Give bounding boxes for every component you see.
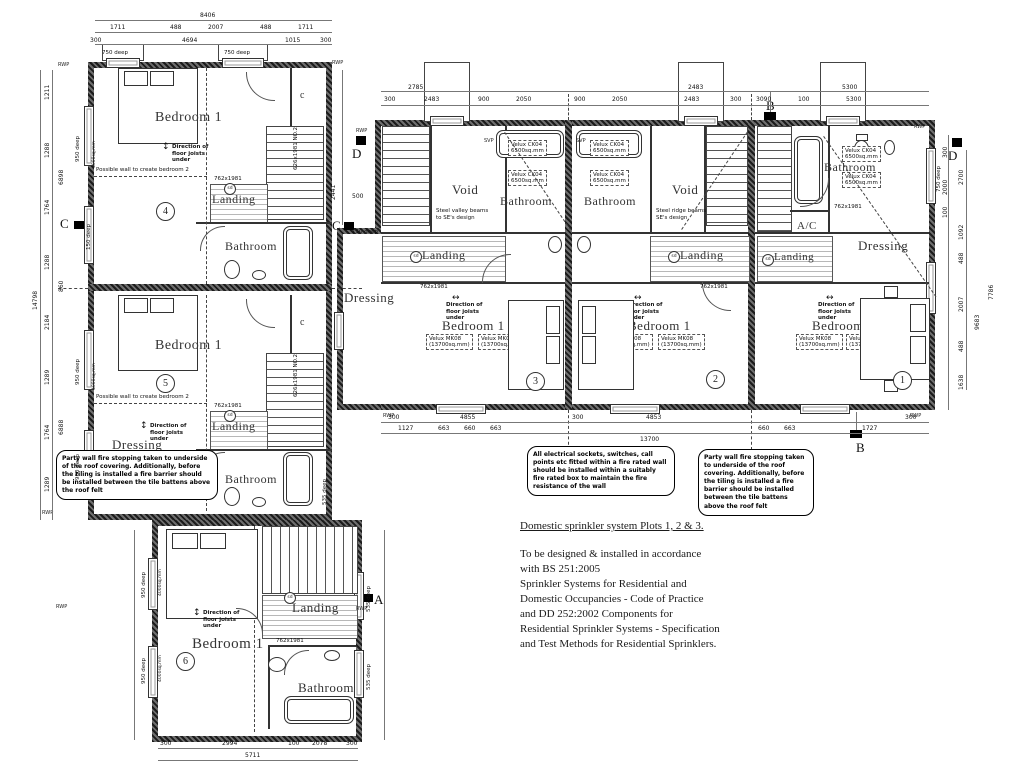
dimension-label: 6898 bbox=[58, 170, 65, 185]
dimension-label: 660 bbox=[758, 425, 769, 432]
dimension-label: 2000 bbox=[942, 180, 949, 195]
room-label-bathroom: Bathroom bbox=[500, 194, 552, 209]
section-marker-a: A bbox=[374, 592, 383, 608]
velux-rooflight-label: Velux CK046500sq.mm bbox=[590, 140, 629, 156]
dimension-line bbox=[381, 91, 929, 92]
deep-label: 950 deep bbox=[75, 454, 82, 480]
smoke-detector: sd bbox=[668, 251, 680, 263]
room-label-ac: A/C bbox=[797, 220, 817, 232]
velux-area: 6500sq.mm bbox=[593, 148, 626, 154]
dimension-line bbox=[95, 44, 332, 45]
dimension-line bbox=[966, 150, 967, 390]
sprinkler-line: and DD 252:2002 Components for bbox=[520, 608, 673, 620]
dimension-label: 488 bbox=[170, 24, 181, 31]
dimension-label: 1288 bbox=[44, 255, 51, 270]
dimension-label: 1211 bbox=[44, 85, 51, 100]
door-size: 762x1981 bbox=[420, 284, 448, 291]
possible-wall-line bbox=[94, 403, 207, 404]
dimension-label: 1711 bbox=[110, 24, 125, 31]
dimension-label: 2483 bbox=[424, 96, 439, 103]
svp-label: SVP bbox=[576, 138, 586, 144]
door-size: 762x1981 bbox=[214, 403, 242, 410]
dimension-line bbox=[381, 105, 929, 106]
deep-label: 950 deep bbox=[141, 658, 148, 684]
dimension-label: 300 bbox=[384, 96, 395, 103]
window bbox=[684, 116, 718, 126]
sink bbox=[252, 270, 266, 280]
sprinkler-line: and Test Methods for Residential Sprinkl… bbox=[520, 638, 716, 650]
dimension-label: 2050 bbox=[516, 96, 531, 103]
dimension-label: 300 bbox=[905, 414, 916, 421]
window bbox=[106, 58, 140, 68]
dimension-label: 660 bbox=[464, 425, 475, 432]
partition bbox=[650, 126, 652, 232]
bathtub bbox=[283, 452, 313, 506]
pillow bbox=[582, 306, 596, 334]
dimension-label: 100 bbox=[798, 96, 809, 103]
bathtub bbox=[283, 226, 313, 280]
smoke-detector: sd bbox=[410, 251, 422, 263]
velux-area: 6500sq.mm bbox=[593, 178, 626, 184]
pillow bbox=[150, 71, 174, 86]
centre-line bbox=[751, 410, 752, 450]
partition bbox=[268, 645, 356, 647]
partition bbox=[381, 232, 565, 234]
sink bbox=[884, 140, 895, 155]
section-line bbox=[856, 412, 857, 430]
room-label-bedroom: Bedroom 1 bbox=[192, 636, 264, 653]
pillow bbox=[124, 298, 148, 313]
dimension-label: 6888 bbox=[58, 420, 65, 435]
plot-number: 6 bbox=[176, 652, 195, 671]
pillow bbox=[546, 336, 560, 364]
dimension-label: 663 bbox=[490, 425, 501, 432]
possible-wall-line bbox=[94, 176, 207, 177]
dimension-label: 1288 bbox=[44, 143, 51, 158]
plot-number: 2 bbox=[706, 370, 725, 389]
door-size: 626x1981 NO.2 bbox=[293, 127, 300, 170]
room-label-landing: Landing bbox=[680, 248, 724, 263]
rwp-label: RWP bbox=[58, 62, 69, 68]
section-marker-c-left: C bbox=[60, 216, 69, 232]
dimension-label: 100 bbox=[942, 207, 949, 218]
room-label-bathroom: Bathroom bbox=[298, 680, 354, 696]
staircase bbox=[757, 126, 792, 232]
dimension-label: 7786 bbox=[988, 285, 995, 300]
room-label-landing: Landing bbox=[774, 251, 814, 263]
window bbox=[354, 650, 364, 698]
dimension-label: 2483 bbox=[688, 84, 703, 91]
window bbox=[148, 646, 158, 698]
dimension-label: 1764 bbox=[44, 425, 51, 440]
pillow bbox=[200, 533, 226, 549]
dimension-label: 1127 bbox=[398, 425, 413, 432]
dimension-label: 500 bbox=[352, 193, 363, 200]
partition bbox=[196, 222, 332, 224]
dimension-label: 300 bbox=[572, 414, 583, 421]
plot-number: 1 bbox=[893, 371, 912, 390]
dormer-outline bbox=[678, 62, 724, 122]
deep-label: 150 deep bbox=[86, 224, 93, 250]
steel-beam-note: Steel valley beams to SE's design bbox=[436, 208, 494, 221]
rwp-label: RWP bbox=[56, 604, 67, 610]
dimension-label: 4694 bbox=[182, 37, 197, 44]
dimension-label: 1764 bbox=[44, 200, 51, 215]
centre-line bbox=[568, 94, 569, 120]
deep-label: 535 deep bbox=[322, 479, 329, 505]
dimension-label: 300 bbox=[388, 414, 399, 421]
room-label-dressing: Dressing bbox=[344, 290, 394, 306]
dimension-line bbox=[52, 70, 53, 520]
partition bbox=[381, 282, 565, 284]
door-size: 762x1981 bbox=[276, 638, 304, 645]
deep-label: 950 deep bbox=[141, 572, 148, 598]
party-wall-plot3-plot2 bbox=[565, 120, 572, 410]
room-label-bedroom: Bedroom 1 bbox=[442, 318, 505, 334]
dimension-label: 900 bbox=[574, 96, 585, 103]
dimension-label: 488 bbox=[260, 24, 271, 31]
room-label-void: Void bbox=[672, 182, 698, 198]
fire-stopping-note: Party wall fire stopping taken to unders… bbox=[698, 449, 814, 516]
toilet bbox=[548, 236, 562, 253]
dimension-label: 2994 bbox=[222, 740, 237, 747]
room-label-landing: Landing bbox=[212, 192, 256, 207]
velux-area: (13700sq.mm) bbox=[661, 342, 702, 348]
room-label-landing: Landing bbox=[292, 600, 339, 616]
section-marker-c-right: C bbox=[332, 218, 341, 234]
dimension-label: 300 bbox=[942, 147, 949, 158]
centre-line bbox=[751, 94, 752, 120]
plot-number: 4 bbox=[156, 202, 175, 221]
toilet bbox=[577, 236, 591, 253]
dimension-label: 5711 bbox=[245, 752, 260, 759]
centre-line bbox=[332, 288, 362, 289]
velux-rooflight-label: Velux MK08(13700sq.mm) bbox=[796, 334, 843, 350]
dimension-label: 4853 bbox=[646, 414, 661, 421]
rwp-label: RWP bbox=[914, 124, 925, 130]
deep-label: 950 deep bbox=[75, 359, 82, 385]
room-label-bedroom: Bedroom 1 bbox=[155, 110, 222, 126]
dimension-label: 100 bbox=[288, 740, 299, 747]
velux-area: 6500sq.mm bbox=[845, 154, 878, 160]
dormer-outline bbox=[424, 62, 470, 122]
room-label-void: Void bbox=[452, 182, 478, 198]
velux-area: 6500sq.mm bbox=[845, 180, 878, 186]
room-label-bathroom: Bathroom bbox=[584, 194, 636, 209]
velux-rooflight-label: Velux CK046500sq.mm bbox=[842, 146, 881, 162]
vent-label: 4000sq.mm bbox=[158, 655, 163, 682]
dimension-label: 1015 bbox=[285, 37, 300, 44]
dimension-label: 663 bbox=[438, 425, 449, 432]
dimension-label: 488 bbox=[958, 253, 965, 264]
velux-rooflight-label: Velux CK046500sq.mm bbox=[590, 170, 629, 186]
dimension-label: 2184 bbox=[44, 315, 51, 330]
vent-label: 4000sq.mm bbox=[92, 141, 97, 168]
dimension-label: 1638 bbox=[958, 375, 965, 390]
smoke-detector: sd bbox=[762, 254, 774, 266]
window bbox=[800, 404, 850, 414]
window bbox=[826, 116, 860, 126]
centre-line bbox=[568, 410, 569, 450]
partition bbox=[268, 645, 270, 729]
velux-area: (13700sq.mm) bbox=[429, 342, 470, 348]
velux-rooflight-label: Velux CK046500sq.mm bbox=[508, 170, 547, 186]
room-label-bathroom: Bathroom bbox=[225, 239, 277, 254]
sink bbox=[252, 497, 266, 507]
dimension-label: 9683 bbox=[974, 315, 981, 330]
dimension-line bbox=[384, 530, 385, 740]
partition bbox=[572, 232, 748, 234]
section-marker-square bbox=[356, 136, 366, 145]
joist-arrow: ↕ bbox=[193, 608, 201, 618]
possible-wall-note: Possible wall to create bedroom 2 bbox=[96, 167, 189, 174]
pillow bbox=[546, 306, 560, 334]
staircase bbox=[262, 526, 358, 594]
partition bbox=[755, 232, 929, 234]
cupboard-partition bbox=[290, 68, 292, 126]
dimension-label: 300 bbox=[730, 96, 741, 103]
deep-label: 150 deep bbox=[352, 229, 378, 236]
sprinkler-line: with BS 251:2005 bbox=[520, 563, 600, 575]
dimension-label: 5300 bbox=[846, 96, 861, 103]
door-size: 626x1981 NO.2 bbox=[293, 354, 300, 397]
joist-note: Direction of floor joists under bbox=[172, 144, 224, 164]
door-size: 762x1981 bbox=[214, 176, 242, 183]
dimension-label: 2785 bbox=[408, 84, 423, 91]
bathtub bbox=[284, 696, 354, 724]
dimension-line bbox=[40, 70, 41, 520]
deep-label: 750 deep bbox=[224, 50, 250, 57]
centre-line bbox=[206, 68, 207, 284]
section-marker-square bbox=[952, 138, 962, 147]
dimension-label: 2483 bbox=[684, 96, 699, 103]
dimension-label: 8406 bbox=[200, 12, 215, 19]
vent-label: 4000sq.mm bbox=[158, 569, 163, 596]
pillow bbox=[150, 298, 174, 313]
side-table bbox=[884, 286, 898, 298]
dimension-label: 300 bbox=[90, 37, 101, 44]
dimension-line bbox=[381, 433, 929, 434]
sink bbox=[324, 650, 340, 661]
deep-label: 750 deep bbox=[102, 50, 128, 57]
electrical-note: All electrical sockets, switches, call p… bbox=[527, 446, 675, 496]
pillow bbox=[582, 336, 596, 364]
window bbox=[430, 116, 464, 126]
sprinkler-line: Residential Sprinkler Systems - Specific… bbox=[520, 623, 720, 635]
pillow bbox=[910, 304, 926, 332]
sprinkler-line: Sprinkler Systems for Residential and bbox=[520, 578, 687, 590]
section-marker-square bbox=[850, 430, 862, 438]
dimension-line bbox=[158, 748, 358, 749]
window bbox=[222, 58, 264, 68]
dimension-label: 488 bbox=[958, 341, 965, 352]
dimension-label: 1727 bbox=[862, 425, 877, 432]
dimension-label: 4855 bbox=[460, 414, 475, 421]
dimension-label: 2007 bbox=[208, 24, 223, 31]
section-marker-square bbox=[74, 221, 84, 229]
room-label-bathroom: Bathroom bbox=[225, 472, 277, 487]
dimension-label: 663 bbox=[784, 425, 795, 432]
window bbox=[610, 404, 660, 414]
sprinkler-heading: Domestic sprinkler system Plots 1, 2 & 3… bbox=[520, 520, 704, 532]
partition bbox=[790, 210, 828, 212]
section-marker-square bbox=[764, 112, 776, 120]
dimension-line bbox=[158, 760, 358, 761]
room-label-landing: Landing bbox=[212, 419, 256, 434]
sprinkler-line: To be designed & installed in accordance bbox=[520, 548, 701, 560]
dimension-label: 2007 bbox=[958, 297, 965, 312]
plot-number: 3 bbox=[526, 372, 545, 391]
joist-arrow: ↕ bbox=[162, 142, 170, 152]
dimension-label: 1289 bbox=[44, 370, 51, 385]
dimension-line bbox=[342, 70, 343, 225]
dimension-line bbox=[95, 32, 332, 33]
cupboard-label: c bbox=[300, 90, 305, 101]
rwp-label: RWP bbox=[332, 60, 343, 66]
dimension-label: 14798 bbox=[32, 291, 39, 310]
pillow bbox=[910, 336, 926, 364]
room-label-bedroom: Bedroom 1 bbox=[628, 318, 691, 334]
dormer-outline bbox=[820, 62, 866, 122]
toilet bbox=[268, 657, 286, 672]
partition bbox=[430, 126, 432, 232]
section-marker-b-bottom: B bbox=[856, 440, 865, 456]
dimension-label: 300 bbox=[346, 740, 357, 747]
pillow bbox=[124, 71, 148, 86]
velux-rooflight-label: Velux CK046500sq.mm bbox=[842, 172, 881, 188]
dimension-label: 1289 bbox=[44, 477, 51, 492]
dimension-label: 5300 bbox=[842, 84, 857, 91]
partition bbox=[755, 282, 929, 284]
window bbox=[148, 558, 158, 610]
door-size: 762x1981 bbox=[700, 284, 728, 291]
dimension-label: 2441 bbox=[330, 185, 337, 200]
cupboard-partition bbox=[290, 295, 292, 353]
dimension-label: 300 bbox=[320, 37, 331, 44]
dimension-label: 13700 bbox=[640, 436, 659, 443]
dimension-label: 2050 bbox=[612, 96, 627, 103]
toilet bbox=[224, 487, 240, 506]
room-label-landing: Landing bbox=[422, 248, 466, 263]
dimension-line bbox=[948, 135, 949, 410]
dimension-label: 860 bbox=[58, 281, 65, 292]
velux-rooflight-label: Velux MK08(13700sq.mm) bbox=[658, 334, 705, 350]
room-label-bedroom: Bedroom 1 bbox=[155, 338, 222, 354]
joist-arrow: ↕ bbox=[140, 421, 148, 431]
dimension-label: 2700 bbox=[958, 170, 965, 185]
vent-label: 4000sq.mm bbox=[92, 363, 97, 390]
window bbox=[436, 404, 486, 414]
door-size: 762x1981 bbox=[834, 204, 862, 211]
velux-rooflight-label: Velux MK08(13700sq.mm) bbox=[426, 334, 473, 350]
deep-label: 950 deep bbox=[75, 136, 82, 162]
svp-label: SVP bbox=[484, 138, 494, 144]
velux-area: (13700sq.mm) bbox=[799, 342, 840, 348]
dimension-label: 300 bbox=[160, 740, 171, 747]
pillow bbox=[172, 533, 198, 549]
staircase bbox=[382, 126, 430, 226]
section-marker-d-left: D bbox=[352, 146, 361, 162]
dimension-label: 1092 bbox=[958, 225, 965, 240]
dimension-label: 2078 bbox=[312, 740, 327, 747]
dimension-label: 3090 bbox=[756, 96, 771, 103]
plot-number: 5 bbox=[156, 374, 175, 393]
dimension-line bbox=[381, 422, 929, 423]
possible-wall-note: Possible wall to create bedroom 2 bbox=[96, 394, 189, 401]
window bbox=[334, 312, 344, 350]
dimension-line bbox=[95, 20, 332, 21]
dimension-label: 900 bbox=[478, 96, 489, 103]
sprinkler-line: Domestic Occupancies - Code of Practice bbox=[520, 593, 704, 605]
toilet bbox=[224, 260, 240, 279]
dimension-label: 1711 bbox=[298, 24, 313, 31]
deep-label: 535 deep bbox=[366, 586, 373, 612]
cupboard-label: c bbox=[300, 317, 305, 328]
dimension-line bbox=[134, 530, 135, 740]
window bbox=[926, 148, 936, 204]
left-building-party-wall bbox=[88, 284, 332, 291]
deep-label: 535 deep bbox=[366, 664, 373, 690]
rwp-label: RWP bbox=[356, 128, 367, 134]
floor-plan-sheet: c Bedroom 1 ↕ Direction of floor joists … bbox=[0, 0, 1024, 783]
partition bbox=[196, 449, 332, 451]
section-marker-d-right: D bbox=[948, 148, 957, 164]
